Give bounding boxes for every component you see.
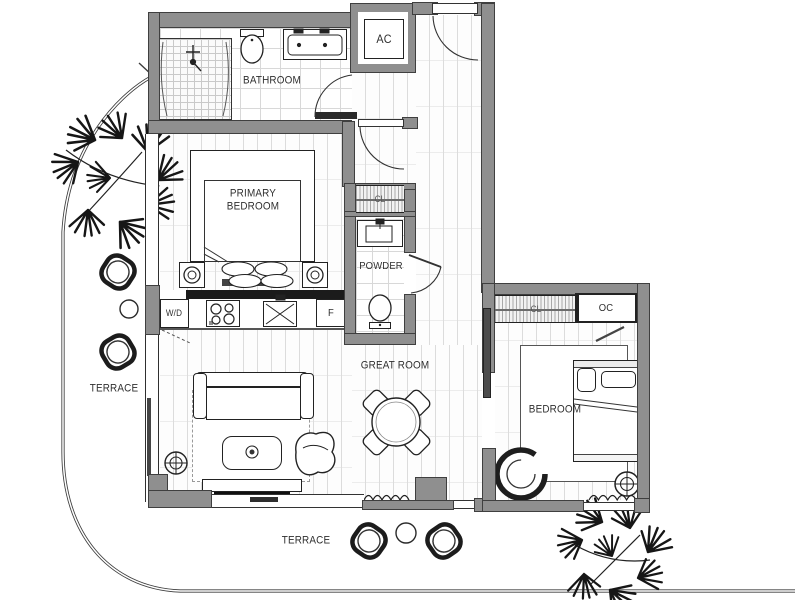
lounge-chair-icon [296,432,335,474]
terrace-left-label: TERRACE [90,383,139,396]
primary-closet-label: CL [375,194,386,204]
primary-bed-detail [184,247,323,288]
powder-door-leaf [409,255,441,267]
owner-closet-label: OC [599,302,614,314]
bedroom-sliding-door [483,308,491,398]
powder-sink-detail [366,219,392,242]
dishwasher-swing [162,330,190,343]
wall-segment [634,498,650,513]
wall-segment [362,500,454,510]
ac-closet-label: AC [376,33,391,47]
washer-dryer-label: W/D [166,308,182,318]
entry-door-leaf [432,3,478,14]
wall-segment [148,490,212,508]
wall-segment [482,500,584,512]
wall-segment [342,121,355,187]
terrace-bottom-label: TERRACE [282,535,331,548]
wall-segment [404,189,416,253]
slider-handle [250,497,278,502]
powder-door-arc [411,267,441,293]
side-lamp-icon [615,472,639,496]
bathroom-door-arc [315,75,352,117]
vanity-detail [288,29,342,55]
terrace-table-icon [396,523,416,543]
primary-bedroom-label: PRIMARY BEDROOM [227,187,279,212]
window-frame-bar [147,398,151,476]
terrace-boundary [63,63,795,591]
cooktop-detail [209,304,234,324]
shower-curtain-left [161,42,167,116]
wall-segment [402,117,418,129]
living-slider-window [212,494,364,508]
wall-segment [637,283,650,513]
terrace-left-furniture [92,247,143,378]
wall-segment [145,285,160,335]
bedroom-window [584,502,636,511]
wall-segment [344,183,356,345]
bathroom-label: BATHROOM [243,75,301,88]
entry-door-arc [433,16,478,60]
powder-label: POWDER [359,260,403,272]
floor-lamp-icon [165,452,187,474]
shower-curtain-right [223,42,228,116]
toilet-icon [241,35,263,63]
structural-column [415,477,447,501]
bedroom-label: BEDROOM [529,404,581,417]
dining-set [361,388,432,457]
bedroom-closet-label: CL [531,304,542,314]
hall-door-arc [360,127,404,169]
floor-plan: BATHROOM AC PRIMARY BEDROOM CL POWDER W/… [0,0,800,600]
shower-head-icon [186,45,201,71]
terrace-bottom-furniture [344,516,468,565]
great-room-label: GREAT ROOM [361,360,430,373]
wall-segment [148,12,352,28]
hanging-chair-icon [497,450,545,498]
bed-fold-lines [574,399,637,412]
wall-segment [344,333,416,345]
kitchen-sink-detail [266,295,294,324]
dining-table-icon [372,398,420,446]
coffee-table-decor [246,446,258,458]
decor-layer [0,0,800,600]
great-room-window [454,500,476,509]
refrigerator-label: F [328,307,334,319]
wall-segment [148,120,352,134]
terrace-table-icon [120,300,138,318]
wall-segment [481,3,495,293]
hall-door-leaf [358,119,404,127]
powder-toilet-icon [369,295,391,326]
wall-segment [148,12,160,122]
oc-door-leaf [596,327,624,341]
